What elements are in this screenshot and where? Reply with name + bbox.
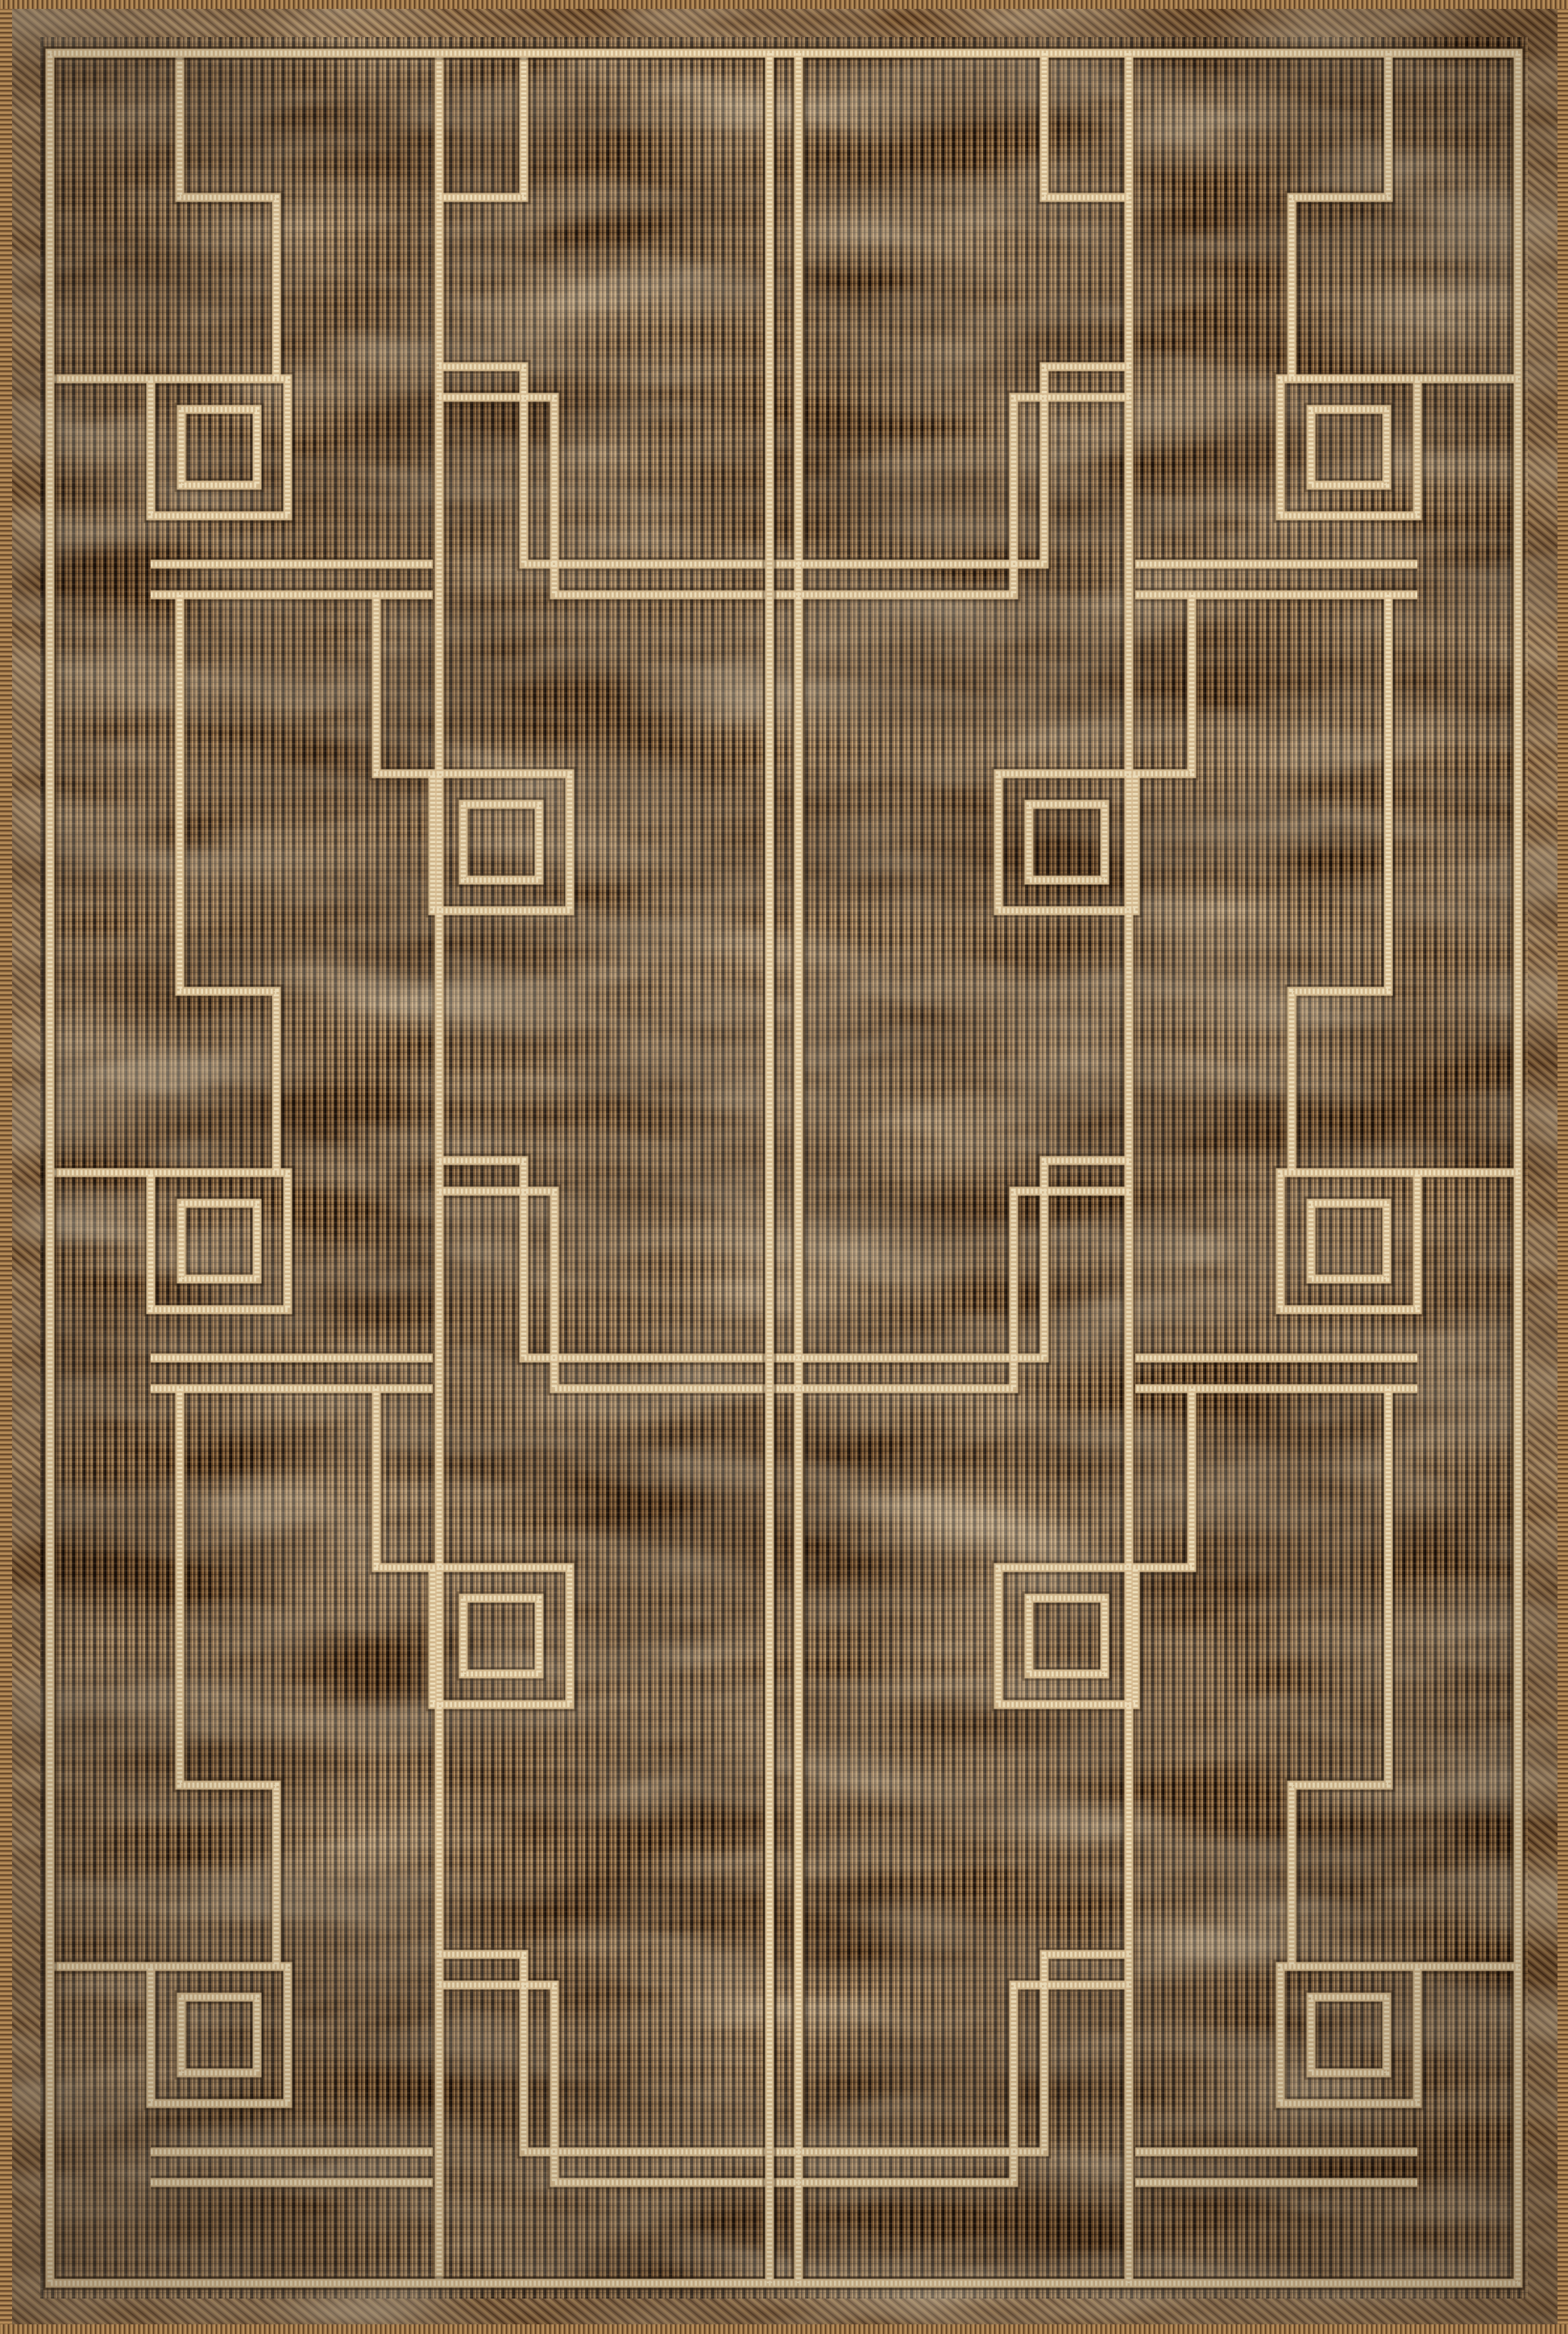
rug-product-photo [0,0,1568,2334]
rug-image [0,0,1568,2334]
rug-fringe-top [0,0,1568,9]
rug-fringe-right [1558,0,1568,2334]
rug-fringe-left [0,0,12,2334]
photo-vignette [0,0,1568,2334]
rug-fringe-bottom [0,2324,1568,2334]
